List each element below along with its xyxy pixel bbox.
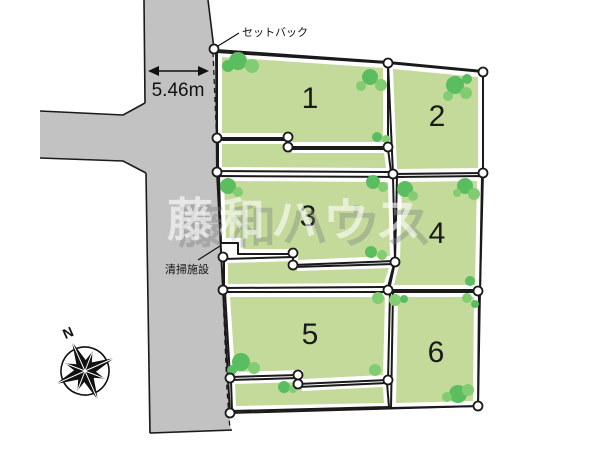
plot-2-number: 2	[429, 100, 446, 133]
compass-rose: N	[35, 312, 127, 413]
watermark: 藤和ハウス 藤和ハウス	[167, 194, 438, 253]
plot-6-number: 6	[428, 336, 445, 369]
setback-leader	[218, 33, 239, 46]
compass-facets	[43, 329, 127, 413]
site-plan: 1 2 3 4 5 6	[0, 0, 600, 450]
setback-label: セットバック	[242, 26, 308, 39]
plot-1-number: 1	[302, 82, 319, 115]
cleaning-facility-label: 清掃施設	[165, 262, 209, 276]
setback-annotation: セットバック	[218, 26, 308, 46]
setback-point-marker	[210, 45, 219, 54]
svg-text:藤和ハウス: 藤和ハウス	[167, 194, 427, 246]
plot-5-number: 5	[302, 318, 319, 351]
road-width-dimension: 5.46m	[148, 66, 209, 101]
site-plan-canvas: 1 2 3 4 5 6	[0, 0, 600, 450]
road-width-label: 5.46m	[152, 80, 205, 101]
compass-north-label: N	[60, 323, 76, 342]
